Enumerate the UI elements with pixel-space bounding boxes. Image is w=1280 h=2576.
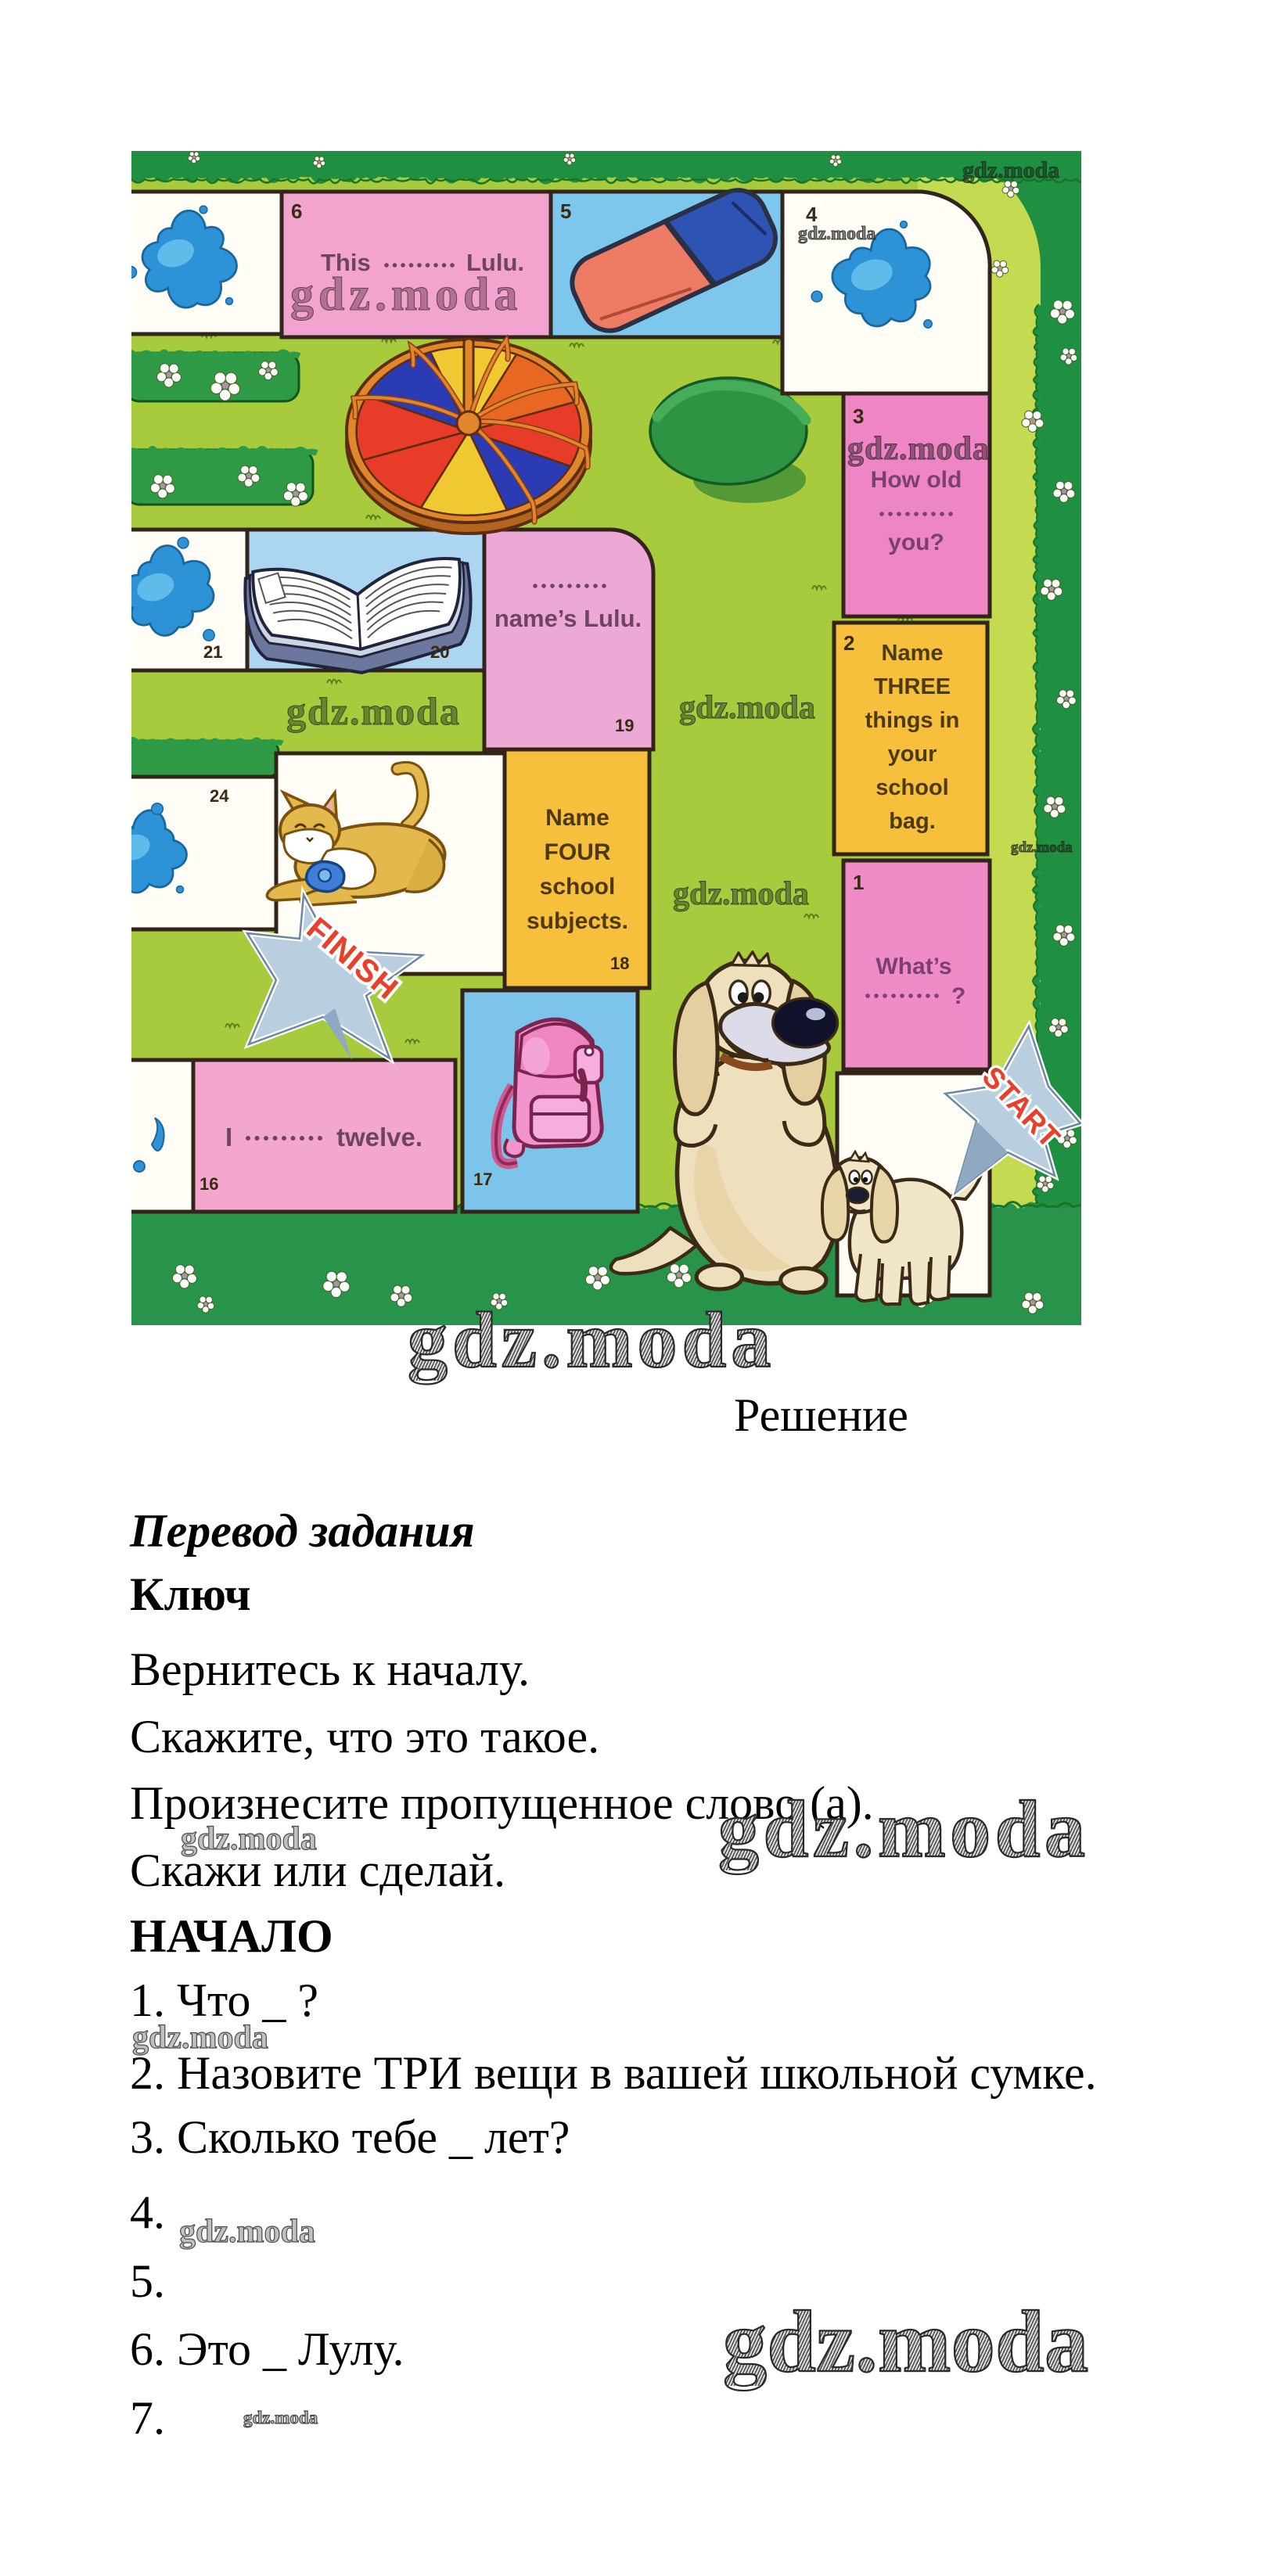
svg-text:gdz.moda: gdz.moda: [962, 157, 1059, 183]
svg-text:gdz.moda: gdz.moda: [847, 431, 990, 467]
svg-text:gdz.moda: gdz.moda: [798, 224, 876, 244]
svg-text:gdz.moda: gdz.moda: [286, 689, 461, 733]
svg-text:gdz.moda: gdz.moda: [1011, 839, 1073, 856]
svg-text:gdz.moda: gdz.moda: [290, 268, 522, 320]
svg-text:gdz.moda: gdz.moda: [673, 876, 809, 912]
svg-text:gdz.moda: gdz.moda: [679, 690, 815, 726]
